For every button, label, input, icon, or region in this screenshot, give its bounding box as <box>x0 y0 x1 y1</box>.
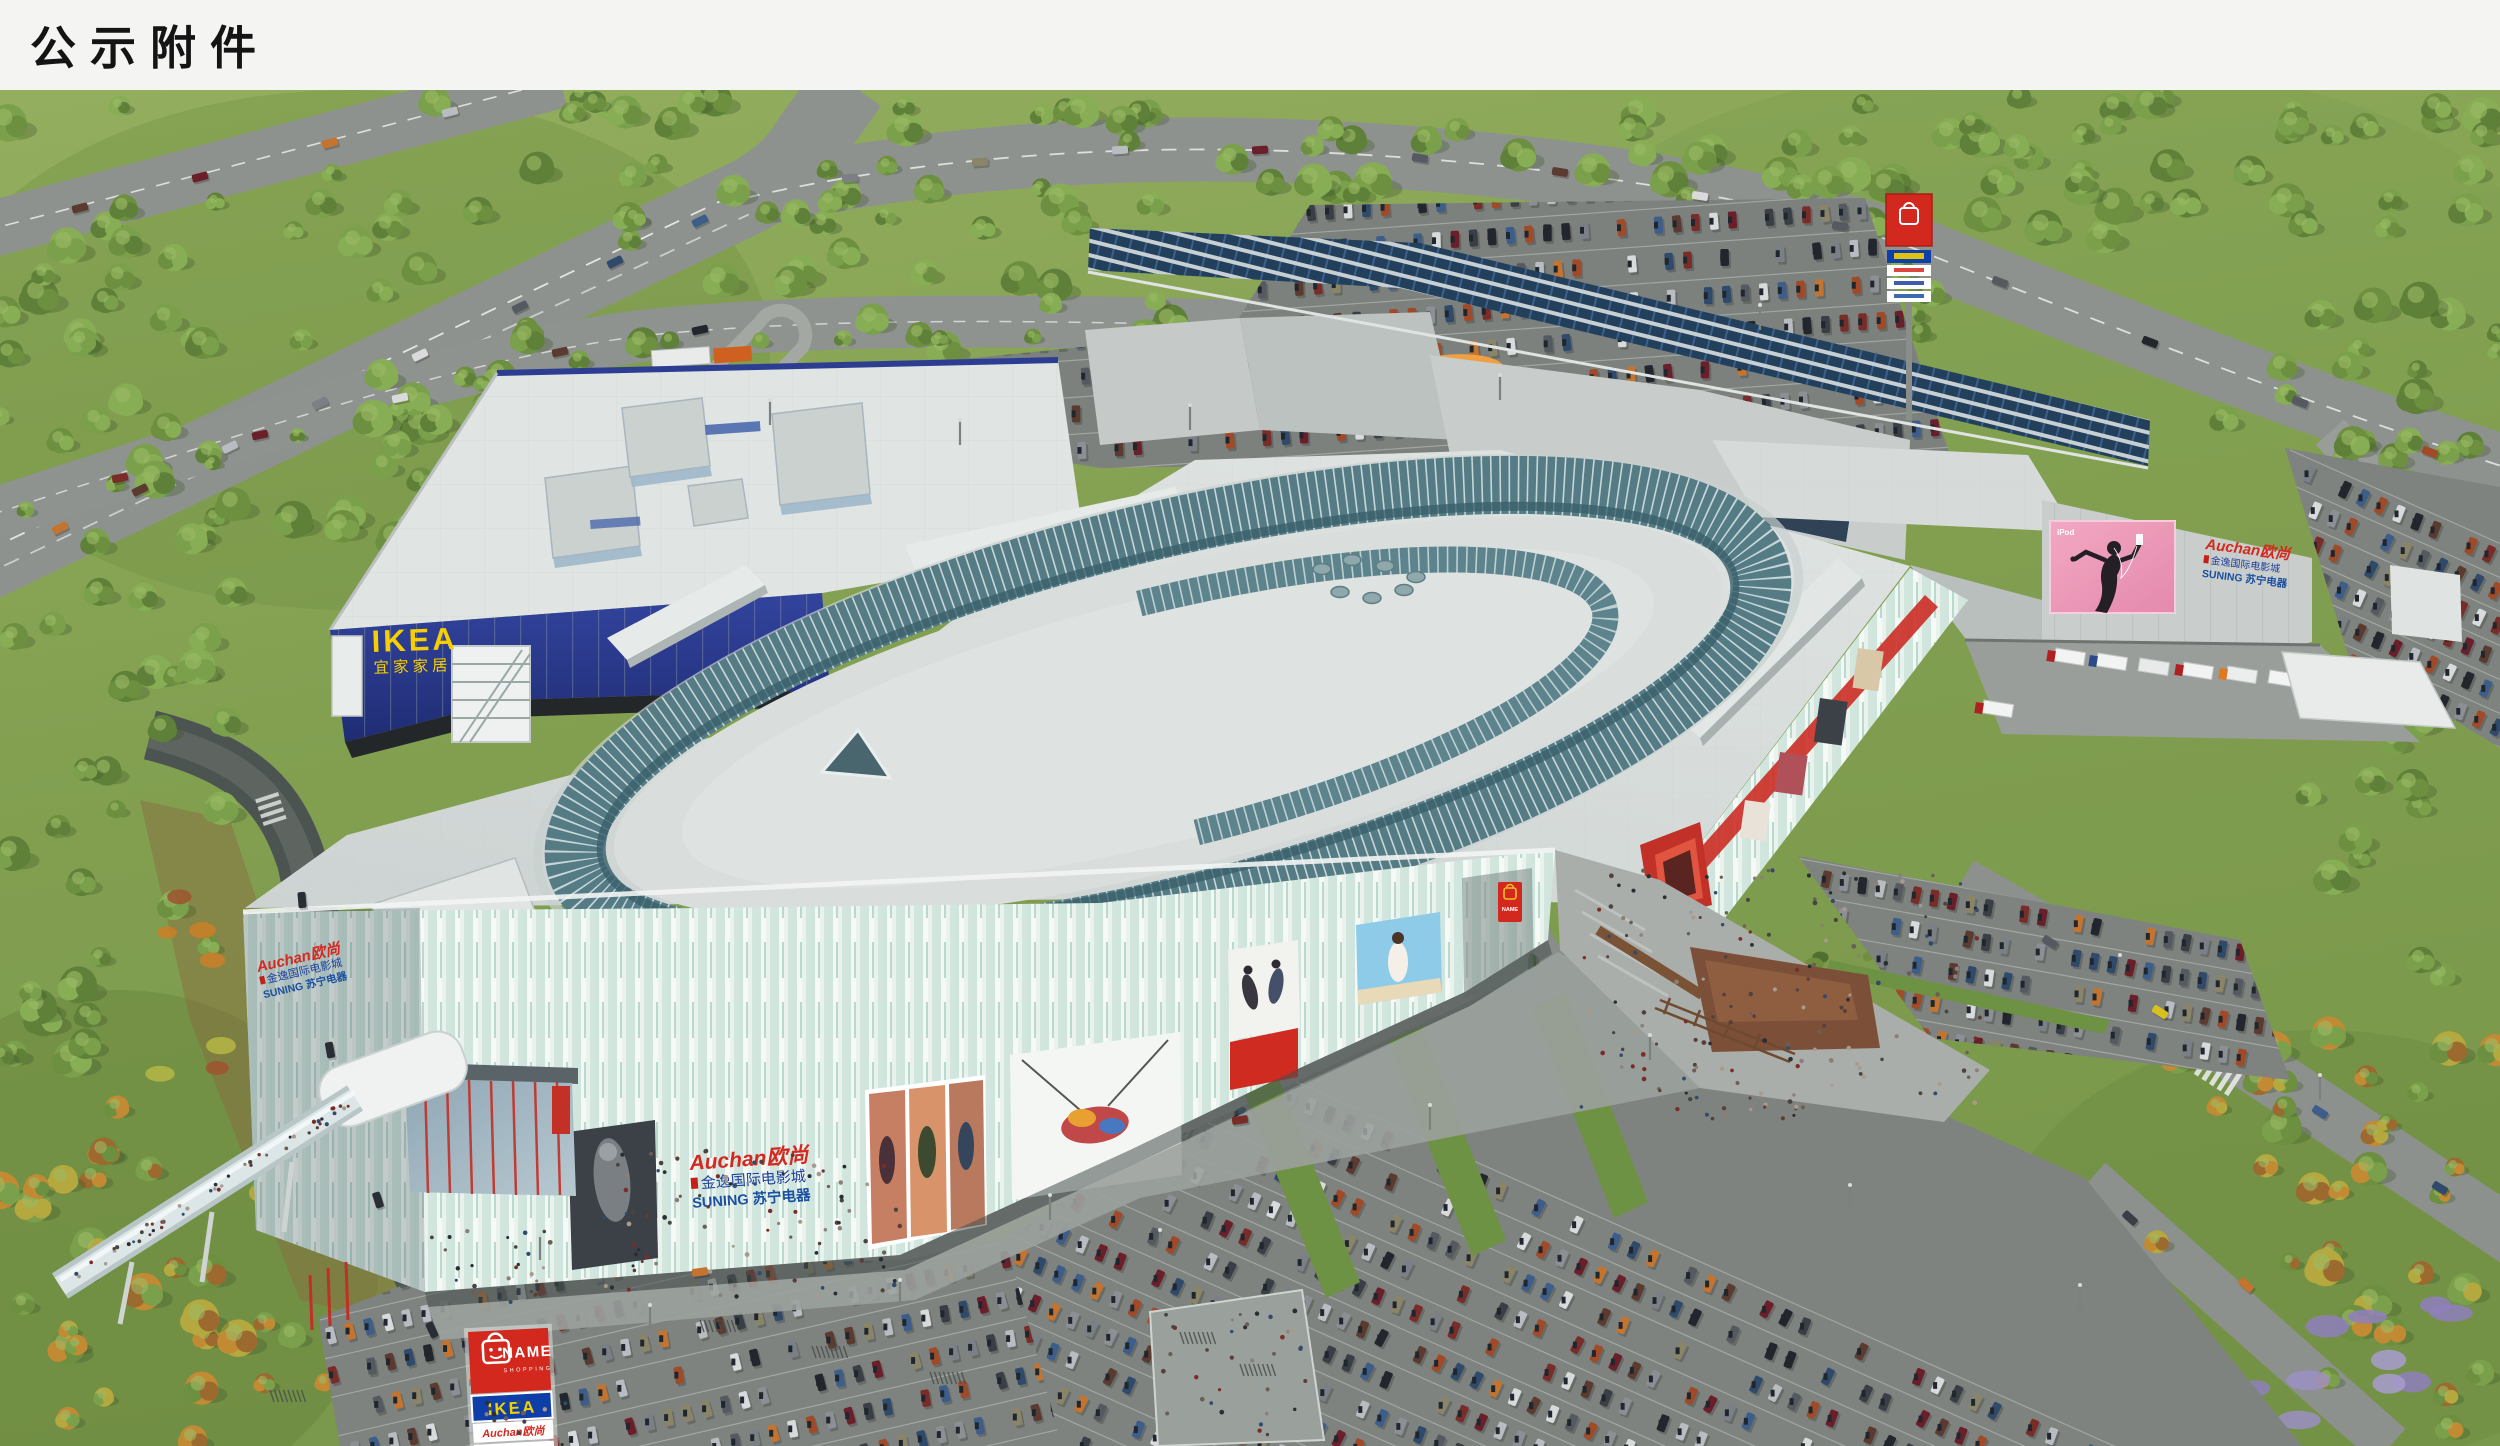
ikea-chinese-text: 宜家家居 <box>373 656 452 677</box>
service-building <box>2390 565 2462 642</box>
page-title: 公示附件 <box>30 12 270 78</box>
ipod-billboard: iPod <box>2050 521 2175 613</box>
billboard-beach-model <box>1356 912 1442 1005</box>
ipod-label: iPod <box>2057 528 2074 537</box>
pylon-name-text: NAME <box>502 1343 553 1363</box>
notice-header: 公示附件 <box>0 0 2500 90</box>
billboard-fashion-duo <box>1228 940 1300 1040</box>
facade-name-logo: NAME <box>1498 882 1522 922</box>
ikea-stair-tower-small <box>332 636 362 716</box>
mall-aerial-view: IKEA 宜家家居 iPod Auchan欧尚 金逸国际电影城 SUNING 苏… <box>0 90 2500 1446</box>
jinyi-logo-mark <box>691 1177 699 1188</box>
bike-parking-island <box>1150 1290 1324 1446</box>
ikea-logo-text: IKEA <box>371 621 458 659</box>
ikea-facade-sign: IKEA 宜家家居 <box>371 621 459 677</box>
facade-name-text: NAME <box>1502 907 1519 913</box>
pylon-sign-southwest: NAME SHOPPING IKEA Auchan欧尚 金逸国际电影城 SUNI… <box>464 1324 560 1446</box>
atrium-red-sign <box>552 1086 570 1134</box>
ipod-device <box>2136 534 2143 545</box>
jinyi-logo-mark <box>2203 555 2209 564</box>
ikea-stair-tower <box>452 646 530 742</box>
aerial-rendering: IKEA 宜家家居 iPod Auchan欧尚 金逸国际电影城 SUNING 苏… <box>0 90 2500 1446</box>
